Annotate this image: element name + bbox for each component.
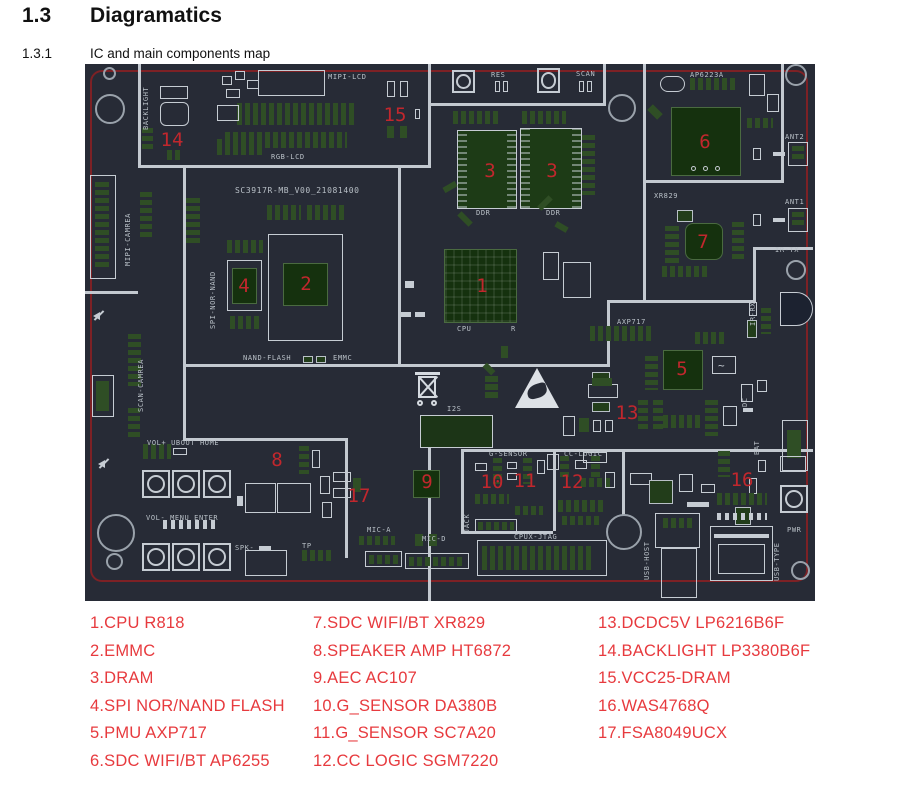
legend-item: 9.AEC AC107 xyxy=(313,665,511,693)
pcb-silkscreen-graphic xyxy=(690,78,735,90)
pcb-silkscreen-graphic xyxy=(643,180,784,183)
silk-label-tp: TP xyxy=(302,542,312,550)
pcb-silkscreen-graphic xyxy=(316,356,326,363)
ir-receiver xyxy=(780,292,813,326)
component-marker-8: 8 xyxy=(271,449,282,471)
esd-warning-icon xyxy=(515,368,559,408)
pcb-silkscreen-graphic xyxy=(387,126,394,138)
silk-label-ddr-2: DDR xyxy=(546,209,560,217)
pcb-silkscreen-graphic xyxy=(303,356,313,363)
pcb-silkscreen-graphic xyxy=(409,557,465,566)
silk-label-i2s: I2S xyxy=(447,405,461,413)
pcb-silkscreen-graphic xyxy=(757,380,767,392)
pcb-silkscreen-graphic xyxy=(665,226,679,266)
pcb-silkscreen-graphic xyxy=(773,152,785,156)
component-marker-12: 12 xyxy=(561,471,584,493)
vol-plus-button xyxy=(142,470,170,498)
pcb-silkscreen-graphic xyxy=(302,550,332,561)
pcb-silkscreen-graphic xyxy=(645,356,658,390)
pcb-silkscreen-graphic xyxy=(237,496,243,506)
pcb-silkscreen-graphic xyxy=(537,460,545,474)
pcb-silkscreen-graphic xyxy=(593,420,601,432)
pcb-silkscreen-graphic xyxy=(387,81,395,97)
pcb-silkscreen-graphic xyxy=(217,139,263,155)
pcb-silkscreen-graphic xyxy=(590,326,652,341)
pcb-silkscreen-graphic xyxy=(428,103,606,106)
legend-item: 2.EMMC xyxy=(90,638,285,666)
pcb-silkscreen-graphic xyxy=(222,76,232,85)
legend-item: 1.CPU R818 xyxy=(90,610,285,638)
pcb-silkscreen-graphic xyxy=(695,332,725,344)
pcb-silkscreen-graphic xyxy=(582,135,595,195)
silk-label-vol-plus-row: VOL+ UBOOT HOME xyxy=(147,439,219,447)
pcb-silkscreen-graphic xyxy=(95,182,109,270)
pcb-silkscreen-graphic xyxy=(431,400,437,406)
silk-label-emmc: EMMC xyxy=(333,354,352,362)
pcb-silkscreen-graphic xyxy=(475,463,487,471)
pcb-silkscreen-graphic xyxy=(186,198,200,243)
silk-label-jack: JACK xyxy=(463,509,471,533)
speaker-mute-icon xyxy=(93,310,107,322)
menu-button xyxy=(172,543,200,571)
pcb-silkscreen-graphic xyxy=(95,94,125,124)
scan-button xyxy=(537,68,560,93)
pcb-silkscreen-graphic xyxy=(677,210,693,222)
pcb-silkscreen-graphic xyxy=(747,118,773,128)
pcb-silkscreen-graphic xyxy=(405,281,414,288)
pcb-silkscreen-graphic xyxy=(662,266,710,277)
pcb-silkscreen-graphic xyxy=(749,74,765,96)
silk-label-usb-type: USB-TYPE xyxy=(773,531,781,581)
component-marker-10: 10 xyxy=(481,471,504,493)
pcb-silkscreen-graphic xyxy=(138,64,141,165)
pcb-silkscreen-graphic xyxy=(140,192,152,238)
component-marker-2: 2 xyxy=(300,273,311,295)
pcb-silkscreen-graphic xyxy=(307,205,345,220)
component-marker-11: 11 xyxy=(514,470,537,492)
component-marker-3a: 3 xyxy=(484,160,495,182)
enter-button xyxy=(203,543,231,571)
pcb-silkscreen-graphic xyxy=(400,81,408,97)
pcb-silkscreen-graphic xyxy=(591,456,600,480)
spk-connector xyxy=(245,550,287,576)
silk-label-scan-camera: SCAN-CAMREA xyxy=(137,350,145,412)
pcb-silkscreen-graphic xyxy=(588,384,618,398)
pcb-silkscreen-graphic xyxy=(780,456,806,472)
pcb-silkscreen-graphic: ~ xyxy=(718,359,725,372)
reset-button xyxy=(452,70,475,93)
backlight-inductor xyxy=(160,102,189,126)
legend-item: 6.SDC WIFI/BT AP6255 xyxy=(90,748,285,776)
board-title: SC3917R-MB_V00_21081400 xyxy=(235,186,360,195)
pcb-silkscreen-graphic xyxy=(663,518,693,528)
pcb-silkscreen-graphic xyxy=(579,81,584,92)
pcb-silkscreen-graphic xyxy=(691,166,696,171)
pcb-silkscreen-graphic xyxy=(103,67,116,80)
pcb-silkscreen-graphic xyxy=(235,71,245,80)
pcb-silkscreen-graphic xyxy=(715,166,720,171)
pcb-silkscreen-graphic xyxy=(369,555,398,564)
legend-item: 3.DRAM xyxy=(90,665,285,693)
pcb-silkscreen-graphic xyxy=(579,418,589,432)
backlight-diode xyxy=(160,86,188,99)
silk-label-cpu-r: R xyxy=(511,325,516,333)
pcb-silkscreen-graphic xyxy=(718,451,730,477)
pcb-silkscreen-graphic xyxy=(453,111,501,124)
pcb-silkscreen-graphic xyxy=(622,449,625,515)
silk-label-cpu: CPU xyxy=(457,325,471,333)
pcb-silkscreen-graphic xyxy=(714,534,769,538)
speaker-amp xyxy=(245,483,276,513)
pcb-silkscreen-graphic xyxy=(563,262,591,298)
i2s-connector xyxy=(420,415,493,448)
pcb-silkscreen-graphic xyxy=(142,128,153,152)
section-number: 1.3 xyxy=(22,4,51,28)
legend-item: 16.WAS4768Q xyxy=(598,693,810,721)
silk-label-mic-a: MIC-A xyxy=(367,526,391,534)
silk-label-bat: BAT xyxy=(753,436,761,455)
pcb-silkscreen-graphic xyxy=(183,364,610,367)
pcb-silkscreen-graphic xyxy=(247,80,259,89)
component-marker-13: 13 xyxy=(616,402,639,424)
pcb-silkscreen-graphic xyxy=(703,166,708,171)
pcb-diagram: ~ xyxy=(85,64,815,601)
pcb-silkscreen-graphic xyxy=(85,291,138,294)
silk-label-spi-nor-nand: SPI-NOR-NAND xyxy=(209,253,217,329)
pcb-silkscreen-graphic xyxy=(653,400,663,430)
legend-column-3: 13.DCDC5V LP6216B6F 14.BACKLIGHT LP3380B… xyxy=(598,610,810,748)
pcb-silkscreen-graphic xyxy=(312,450,320,468)
pcb-silkscreen-graphic xyxy=(661,548,697,598)
pcb-silkscreen-graphic xyxy=(415,312,425,317)
silk-label-mic-d: MIC-D xyxy=(422,535,446,543)
legend-column-1: 1.CPU R818 2.EMMC 3.DRAM 4.SPI NOR/NAND … xyxy=(90,610,285,776)
mipi-lcd-connector xyxy=(258,70,325,96)
silk-label-mipi-camera: MIPI-CAMREA xyxy=(124,200,132,266)
pcb-silkscreen-graphic xyxy=(398,165,401,367)
component-marker-1: 1 xyxy=(476,275,487,297)
pcb-silkscreen-graphic xyxy=(792,212,804,228)
legend-item: 12.CC LOGIC SGM7220 xyxy=(313,748,511,776)
subsection-title: IC and main components map xyxy=(90,46,270,61)
pcb-silkscreen-graphic xyxy=(701,484,715,493)
pcb-silkscreen-graphic xyxy=(428,64,431,168)
manual-page: 1.3 Diagramatics 1.3.1 IC and main compo… xyxy=(0,0,908,790)
silk-label-vol-minus-row: VOL- MENU ENTER xyxy=(146,514,218,522)
pcb-silkscreen-graphic xyxy=(753,214,761,226)
legend-item: 13.DCDC5V LP6216B6F xyxy=(598,610,810,638)
component-marker-5: 5 xyxy=(676,358,687,380)
pcb-silkscreen-graphic xyxy=(167,150,183,160)
legend-item: 7.SDC WIFI/BT XR829 xyxy=(313,610,511,638)
pcb-silkscreen-graphic xyxy=(217,105,239,121)
pcb-silkscreen-graphic xyxy=(761,308,771,334)
pcb-silkscreen-graphic xyxy=(320,476,330,494)
silk-label-backlight: BACKLIGHT xyxy=(142,78,150,130)
pcb-silkscreen-graphic xyxy=(605,420,613,432)
pcb-silkscreen-graphic xyxy=(575,460,587,469)
silk-label-axp717: AXP717 xyxy=(617,318,646,326)
legend-item: 15.VCC25-DRAM xyxy=(598,665,810,693)
silk-label-pwr: PWR xyxy=(787,526,801,534)
wifi-module-shield xyxy=(660,76,685,92)
pcb-silkscreen-graphic xyxy=(475,494,509,504)
silk-label-ant2: ANT2 xyxy=(785,133,804,141)
pcb-silkscreen-graphic xyxy=(138,165,431,168)
pcb-silkscreen-graphic xyxy=(495,81,500,92)
pcb-silkscreen-graphic xyxy=(605,472,615,488)
pcb-silkscreen-graphic xyxy=(791,561,810,580)
silk-label-ddr-1: DDR xyxy=(476,209,490,217)
silk-label-cpux-jtag: CPUX-JTAG xyxy=(514,533,557,541)
pcb-silkscreen-graphic xyxy=(717,493,767,505)
section-title: Diagramatics xyxy=(90,4,222,28)
pcb-silkscreen-graphic xyxy=(663,415,703,428)
pcb-silkscreen-graphic xyxy=(507,462,517,469)
pcb-silkscreen-graphic xyxy=(705,400,718,436)
pcb-silkscreen-graphic xyxy=(607,300,756,303)
pcb-silkscreen-graphic xyxy=(428,438,431,601)
pcb-silkscreen-graphic xyxy=(415,372,440,375)
pcb-silkscreen-graphic xyxy=(299,446,309,474)
component-marker-17: 17 xyxy=(348,485,371,507)
speaker-mute-icon xyxy=(98,458,112,470)
component-marker-3b: 3 xyxy=(546,160,557,182)
pcb-silkscreen-graphic xyxy=(522,111,566,124)
pcb-silkscreen-graphic xyxy=(547,454,559,470)
component-marker-16: 16 xyxy=(731,469,754,491)
pcb-silkscreen-graphic xyxy=(237,103,355,125)
pcb-silkscreen-graphic xyxy=(96,381,109,411)
pcb-silkscreen-graphic xyxy=(773,218,785,222)
pcb-silkscreen-graphic xyxy=(227,240,263,253)
pcb-silkscreen-graphic xyxy=(230,316,262,329)
pcb-silkscreen-graphic xyxy=(587,81,592,92)
component-marker-6: 6 xyxy=(699,131,710,153)
component-marker-15: 15 xyxy=(384,104,407,126)
pcb-silkscreen-graphic xyxy=(781,64,784,183)
pcb-silkscreen-graphic xyxy=(717,513,767,520)
silk-label-spk: SPK- xyxy=(235,544,254,552)
ir-tx-ring xyxy=(786,260,806,280)
pcb-silkscreen-graphic xyxy=(173,448,187,455)
pcb-silkscreen-graphic xyxy=(106,553,123,570)
subsection-number: 1.3.1 xyxy=(22,46,52,61)
pcb-silkscreen-graphic xyxy=(485,392,498,398)
pcb-silkscreen-graphic xyxy=(767,94,779,112)
component-marker-14: 14 xyxy=(161,129,184,151)
speaker-amp xyxy=(277,483,311,513)
legend-item: 11.G_SENSOR SC7A20 xyxy=(313,720,511,748)
silk-label-ir-tx: IR-TX xyxy=(775,246,799,254)
pcb-silkscreen-graphic xyxy=(603,64,606,106)
pcb-silkscreen-graphic xyxy=(501,346,508,358)
silk-label-g-sensor: G-SENSOR xyxy=(489,450,528,458)
pcb-silkscreen-graphic xyxy=(558,500,604,512)
pcb-silkscreen-graphic xyxy=(723,406,737,426)
pcb-silkscreen-graphic xyxy=(562,516,600,525)
pcb-silkscreen-graphic xyxy=(792,146,804,162)
silk-label-rgb-lcd: RGB-LCD xyxy=(271,153,305,161)
silk-label-scan: SCAN xyxy=(576,70,595,78)
home-button xyxy=(203,470,231,498)
pcb-silkscreen-graphic xyxy=(638,400,648,430)
pcb-silkscreen-graphic xyxy=(97,514,135,552)
silk-label-usb-host: USB-HOST xyxy=(643,532,651,580)
pcb-silkscreen-graphic xyxy=(718,544,765,574)
component-marker-7: 7 xyxy=(697,231,708,253)
silk-label-nand-flash: NAND-FLASH xyxy=(243,354,291,362)
legend-item: 8.SPEAKER AMP HT6872 xyxy=(313,638,511,666)
pcb-silkscreen-graphic xyxy=(400,126,407,138)
component-marker-9: 9 xyxy=(421,471,432,493)
silk-label-res: RES xyxy=(491,71,505,79)
pcb-silkscreen-graphic xyxy=(563,416,575,436)
silk-label-ap6223a: AP6223A xyxy=(690,71,724,79)
pcb-silkscreen-graphic xyxy=(515,506,543,515)
silk-label-xr829: XR829 xyxy=(654,192,678,200)
pcb-silkscreen-graphic xyxy=(649,480,673,504)
power-button xyxy=(780,485,808,513)
silk-label-dc: DC xyxy=(741,392,749,407)
silk-label-cc-logic: CC-LOGIC xyxy=(564,450,603,458)
pcb-silkscreen-graphic xyxy=(485,384,498,390)
silk-label-mipi-lcd: MIPI-LCD xyxy=(328,73,367,81)
pcb-silkscreen-graphic xyxy=(485,376,498,382)
legend-item: 10.G_SENSOR DA380B xyxy=(313,693,511,721)
pcb-silkscreen-graphic xyxy=(743,408,753,412)
pcb-silkscreen-graphic xyxy=(359,536,395,545)
pcb-silkscreen-graphic xyxy=(592,378,612,386)
legend-item: 14.BACKLIGHT LP3380B6F xyxy=(598,638,810,666)
pcb-silkscreen-graphic xyxy=(785,64,807,86)
pcb-silkscreen-graphic xyxy=(333,472,351,482)
pcb-silkscreen-graphic xyxy=(787,430,801,458)
pcb-silkscreen-graphic xyxy=(401,312,411,317)
legend-column-2: 7.SDC WIFI/BT XR829 8.SPEAKER AMP HT6872… xyxy=(313,610,511,776)
pcb-silkscreen-graphic xyxy=(592,402,610,412)
pcb-silkscreen-graphic xyxy=(758,460,766,472)
uboot-button xyxy=(172,470,200,498)
legend-item: 5.PMU AXP717 xyxy=(90,720,285,748)
pcb-silkscreen-graphic xyxy=(608,94,636,122)
vol-minus-button xyxy=(142,543,170,571)
pcb-silkscreen-graphic xyxy=(259,546,271,551)
pcb-silkscreen-graphic xyxy=(543,252,559,280)
pcb-silkscreen-graphic xyxy=(478,522,514,530)
pcb-silkscreen-graphic xyxy=(679,474,693,492)
pcb-silkscreen-graphic xyxy=(687,502,709,507)
silk-label-ir-rx: IR-RX xyxy=(749,294,757,326)
pcb-silkscreen-graphic xyxy=(753,148,761,160)
pcb-silkscreen-graphic xyxy=(322,502,332,518)
pcb-silkscreen-graphic xyxy=(643,64,646,303)
component-marker-4: 4 xyxy=(238,275,249,297)
pcb-silkscreen-graphic xyxy=(128,408,140,438)
pcb-silkscreen-graphic xyxy=(606,514,642,550)
pcb-silkscreen-graphic xyxy=(482,546,594,570)
legend-item: 17.FSA8049UCX xyxy=(598,720,810,748)
pcb-silkscreen-graphic xyxy=(267,205,301,220)
pcb-silkscreen-graphic xyxy=(732,222,744,260)
pcb-silkscreen-graphic xyxy=(417,400,423,406)
legend-item: 4.SPI NOR/NAND FLASH xyxy=(90,693,285,721)
pcb-silkscreen-graphic xyxy=(226,89,240,98)
pcb-silkscreen-graphic xyxy=(503,81,508,92)
weee-bin-icon xyxy=(415,370,441,407)
silk-label-ant1: ANT1 xyxy=(785,198,804,206)
pcb-silkscreen-graphic xyxy=(415,109,420,119)
